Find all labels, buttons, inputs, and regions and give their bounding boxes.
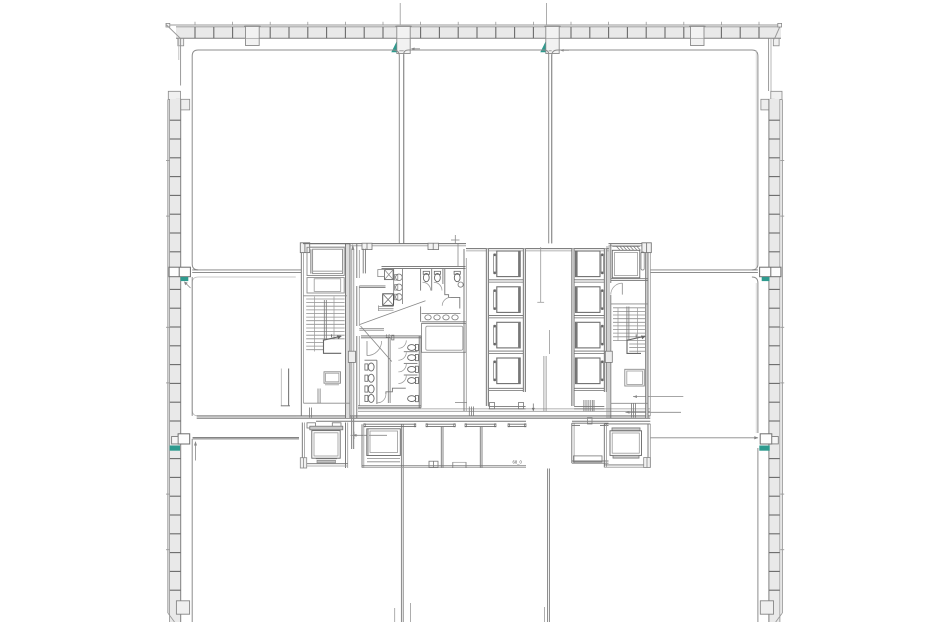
svg-text:12: 12: [386, 334, 392, 339]
svg-text:68_0: 68_0: [513, 460, 523, 465]
